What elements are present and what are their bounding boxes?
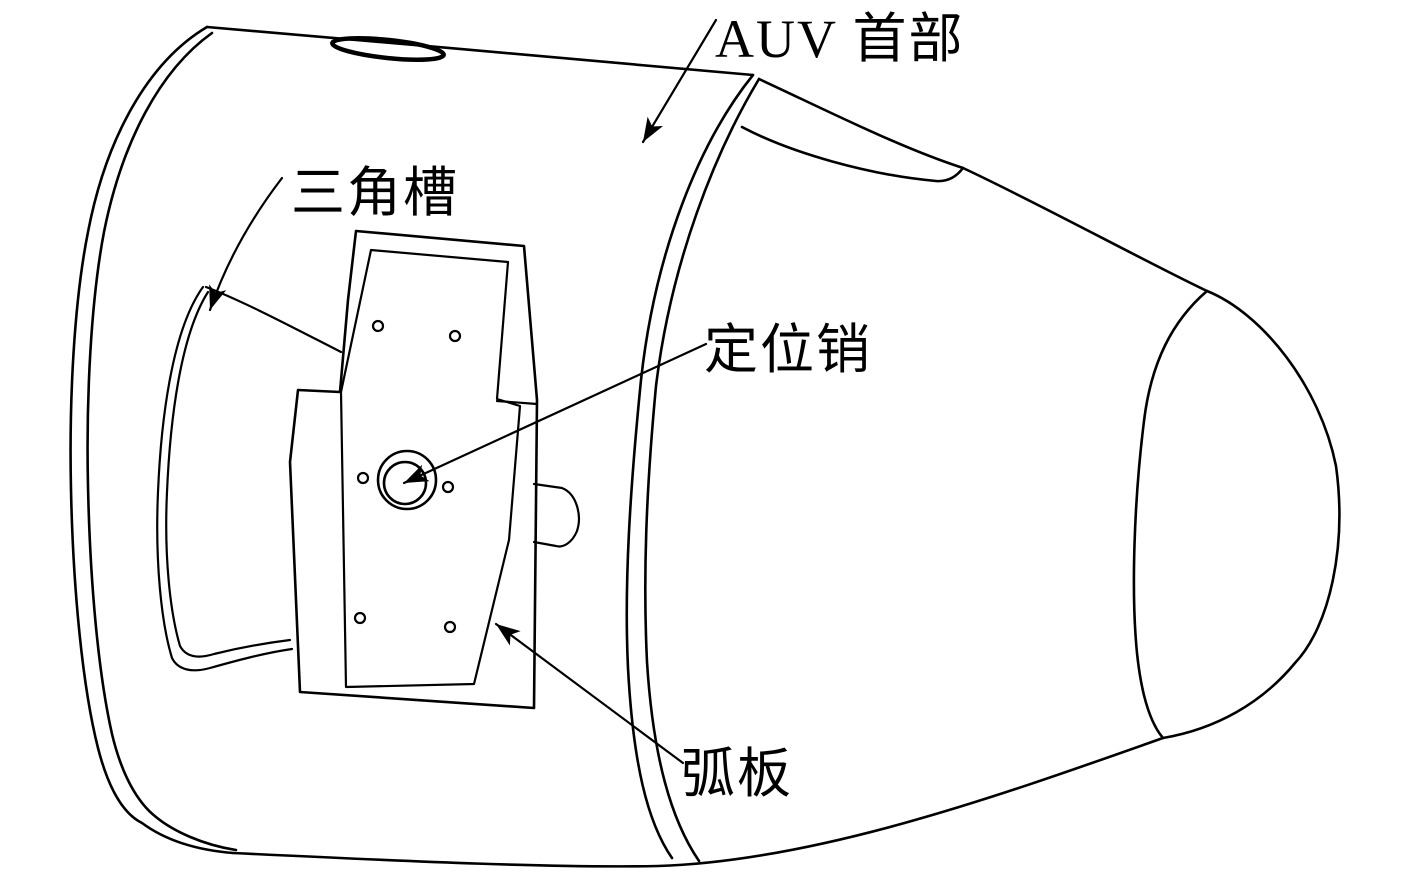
screw-hole xyxy=(450,331,460,341)
leader-auv-head xyxy=(643,20,716,142)
label-arc-plate: 弧板 xyxy=(681,744,793,804)
plate-inner-outline xyxy=(341,250,520,687)
nose-shoulder-line xyxy=(742,127,963,181)
figure-canvas: AUV 首部 三角槽 定位销 弧板 xyxy=(0,0,1417,886)
leader-positioning-pin xyxy=(404,344,706,483)
plate-outer-outline xyxy=(290,231,537,708)
plate-step-line xyxy=(497,401,537,404)
top-slot-opening xyxy=(331,34,444,64)
screw-hole xyxy=(358,473,368,483)
groove-left-outer xyxy=(157,287,292,670)
leader-triangular-groove xyxy=(210,178,282,310)
groove-left-inner xyxy=(166,292,290,657)
seam-outer-curve xyxy=(627,75,753,858)
triangular-groove xyxy=(157,287,341,670)
body-top-edge xyxy=(207,27,753,75)
nose-dome-left xyxy=(1134,291,1207,738)
screw-hole xyxy=(445,622,455,632)
screw-hole xyxy=(355,613,365,623)
positioning-pin xyxy=(378,451,436,509)
label-triangular-groove: 三角槽 xyxy=(291,163,459,223)
plate-side-tab xyxy=(534,484,579,546)
groove-top-curve xyxy=(206,287,341,352)
leader-arc-plate xyxy=(496,624,683,763)
label-positioning-pin: 定位销 xyxy=(704,320,872,380)
nose-dome-right xyxy=(1163,291,1339,738)
label-auv-head: AUV 首部 xyxy=(715,9,965,69)
nose-cone xyxy=(742,79,1339,738)
auv-head-line-drawing: AUV 首部 三角槽 定位销 弧板 xyxy=(0,0,1417,886)
left-rim-outer xyxy=(71,27,233,853)
screw-hole xyxy=(373,321,383,331)
auv-body-outline xyxy=(71,27,1163,866)
screw-hole xyxy=(443,482,453,492)
nose-top-edge xyxy=(759,79,1207,291)
pin-outer-circle xyxy=(378,451,436,509)
